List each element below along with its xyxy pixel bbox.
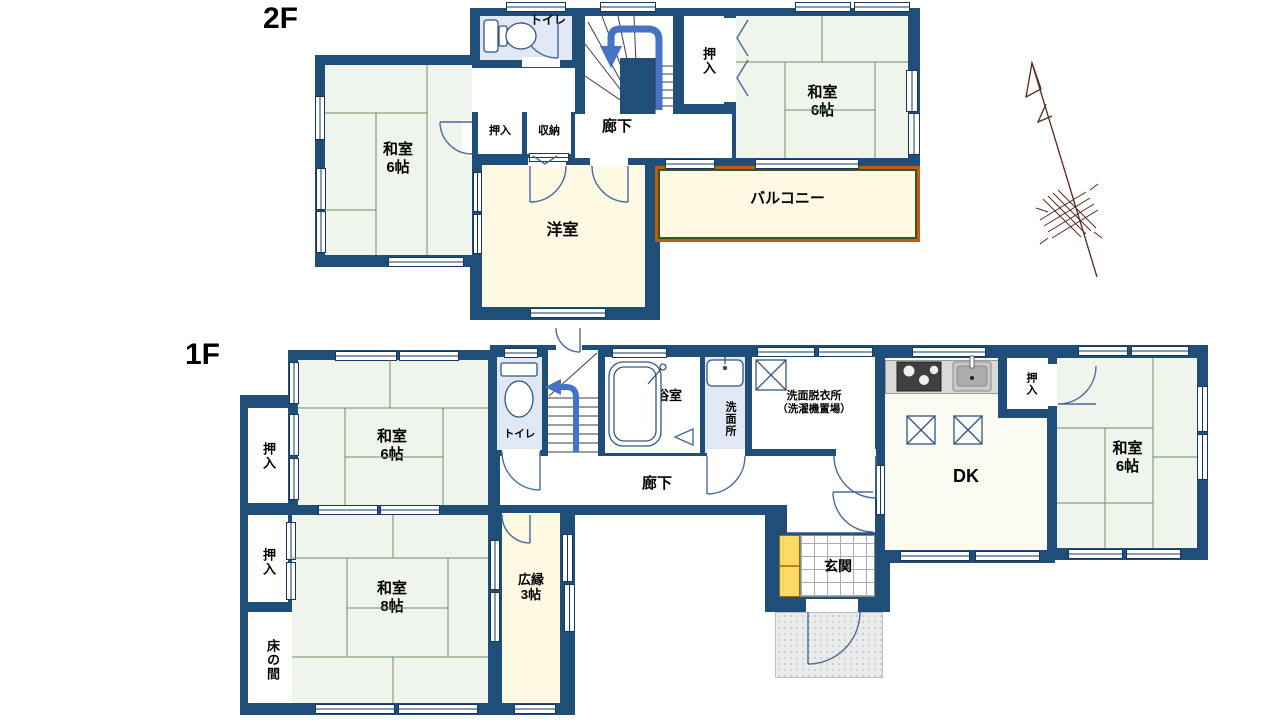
room-label-closet-small-2f: 押入 (478, 125, 522, 138)
room-size: 8帖 (380, 598, 403, 615)
room-name: 和室 (383, 141, 413, 158)
room-size: 3帖 (521, 587, 541, 602)
sliding-door (490, 540, 500, 590)
window (289, 362, 299, 404)
fusuma-sliding-door (318, 505, 378, 515)
room-2f-hall-a (470, 68, 575, 112)
window (514, 704, 556, 714)
closet-sliding-door (286, 522, 296, 560)
room-label-closet-nw-1f: 押入 (252, 424, 276, 488)
window (908, 113, 920, 155)
room-label-dk-1f: DK (935, 466, 997, 487)
window (562, 534, 573, 582)
room-label-washitsu-south-1f: 和室8帖 (352, 580, 432, 615)
window (900, 551, 970, 561)
door-gap (502, 449, 540, 457)
sliding-door-to-balcony (665, 159, 715, 169)
window (315, 96, 325, 140)
window (600, 2, 656, 12)
wall-dk-closet-bottom (998, 409, 1048, 418)
window (530, 308, 606, 318)
window (975, 551, 1040, 561)
window (506, 2, 566, 12)
window (398, 704, 478, 714)
window (612, 348, 667, 358)
window (876, 465, 885, 515)
sliding-door (473, 214, 482, 254)
door-gap (522, 57, 560, 67)
closet-2f-bifold-door (724, 18, 736, 102)
room-name: 広縁 (518, 572, 544, 587)
room-label-closet-dk-1f: 押入 (1017, 361, 1037, 407)
window (854, 2, 910, 12)
window (316, 168, 326, 210)
room-2f-stairs (585, 16, 673, 114)
room-name-sub: （洗濯機置場） (777, 403, 851, 415)
room-size: 6帖 (386, 159, 409, 176)
window (315, 704, 395, 714)
room-name: 和室 (377, 428, 407, 445)
room-label-youshitsu-2f: 洋室 (520, 222, 605, 241)
window (316, 211, 326, 253)
room-name: 和室 (377, 580, 407, 597)
closet-sliding-door (289, 414, 299, 456)
room-label-washitsu-right-2f: 和室6帖 (780, 84, 865, 119)
window (818, 347, 873, 357)
entrance-door-gap (806, 599, 858, 612)
window (1197, 386, 1208, 432)
room-label-balcony-2f: バルコニー (720, 190, 855, 208)
sliding-door (490, 592, 500, 642)
floor2-label: 2F (263, 2, 298, 36)
shoe-cabinet (779, 535, 800, 597)
window (1068, 549, 1123, 559)
north-arrow-compass-icon (1026, 63, 1102, 277)
floor1-label: 1F (185, 338, 220, 372)
room-label-washitsu-east-1f: 和室6帖 (1085, 440, 1170, 475)
door-gap (836, 449, 876, 457)
room-size: 6帖 (1116, 458, 1139, 475)
door-gap (556, 344, 582, 352)
room-label-laundry-1f: 洗面脱衣所（洗濯機置場） (753, 390, 875, 416)
room-label-tokonoma-1f: 床の間 (254, 622, 280, 698)
room-label-bath-1f: 浴室 (644, 388, 694, 403)
sliding-door-to-balcony (755, 159, 859, 169)
room-1f-bath (605, 357, 700, 453)
room-label-washitsu-nw-1f: 和室6帖 (352, 428, 432, 463)
room-label-washroom-1f: 洗面所 (714, 390, 736, 448)
closet-sliding-door (289, 458, 299, 500)
window (564, 584, 575, 632)
room-label-hallway-1f: 廊下 (625, 475, 689, 493)
room-name: 洗面脱衣所 (787, 390, 842, 402)
room-1f-vestibule (787, 456, 875, 533)
room-label-toilet-2f: トイレ (520, 13, 576, 27)
window (757, 347, 815, 357)
room-label-toilet-1f: トイレ (497, 428, 542, 440)
window (1126, 549, 1181, 559)
room-label-closet-west-1f: 押入 (252, 530, 276, 594)
sliding-door (473, 172, 482, 212)
window (906, 70, 918, 112)
room-label-genkan-1f: 玄関 (808, 558, 868, 575)
door-gap (707, 449, 745, 457)
kitchen-counter (885, 360, 1001, 394)
window (335, 351, 397, 361)
window (1197, 434, 1208, 480)
storage-bifold-door (529, 153, 569, 162)
room-size: 6帖 (380, 446, 403, 463)
room-1f-stairs (548, 350, 598, 456)
door-gap (590, 158, 628, 167)
window (912, 347, 986, 357)
door-gap (462, 120, 472, 156)
room-label-storage-2f: 収納 (527, 125, 571, 138)
window (388, 257, 464, 267)
room-name: 和室 (1112, 440, 1142, 457)
room-name: 和室 (807, 84, 837, 101)
room-label-washitsu-left-2f: 和室6帖 (358, 141, 438, 176)
fusuma-sliding-door (380, 505, 440, 515)
room-label-hallway-2f: 廊下 (585, 118, 649, 136)
room-label-hiroen-1f: 広縁3帖 (505, 572, 557, 603)
window (1131, 346, 1189, 356)
closet-sliding-door (286, 562, 296, 600)
window (399, 351, 459, 361)
window (504, 348, 538, 358)
entrance-porch (775, 612, 883, 678)
room-label-closet-2f: 押入 (692, 30, 716, 92)
window (795, 2, 851, 12)
door-gap (1048, 364, 1057, 406)
room-size: 6帖 (811, 102, 834, 119)
room-1f-hiroen (502, 513, 560, 703)
floorplan-canvas: 2F 1F (0, 0, 1280, 720)
window (1078, 346, 1128, 356)
